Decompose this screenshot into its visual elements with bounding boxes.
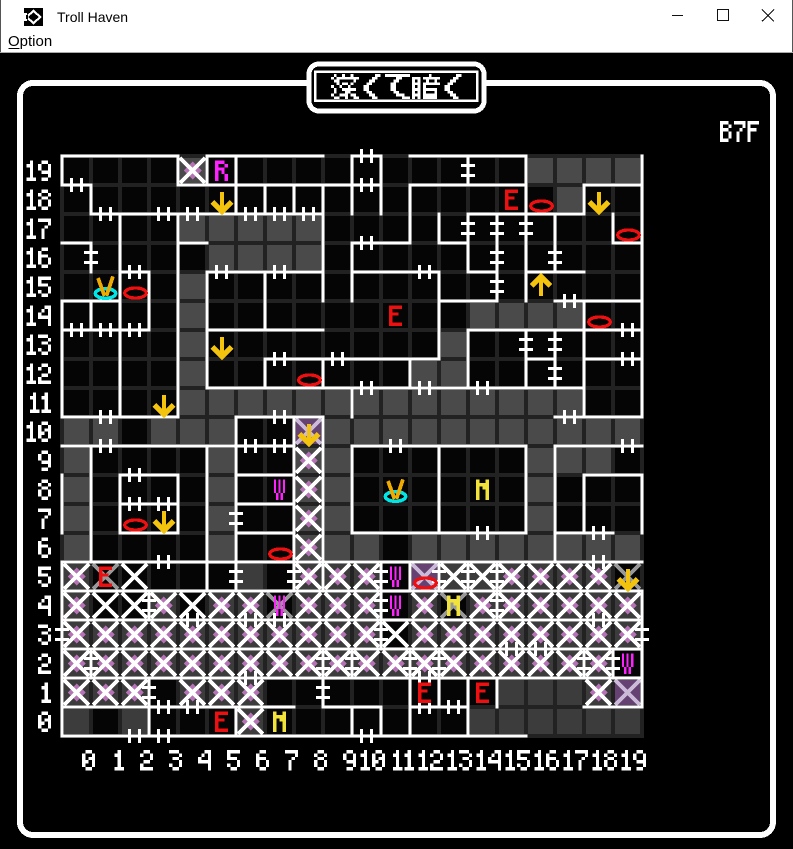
- svg-text:Option: Option: [8, 33, 52, 50]
- svg-text:Troll Haven: Troll Haven: [57, 9, 128, 25]
